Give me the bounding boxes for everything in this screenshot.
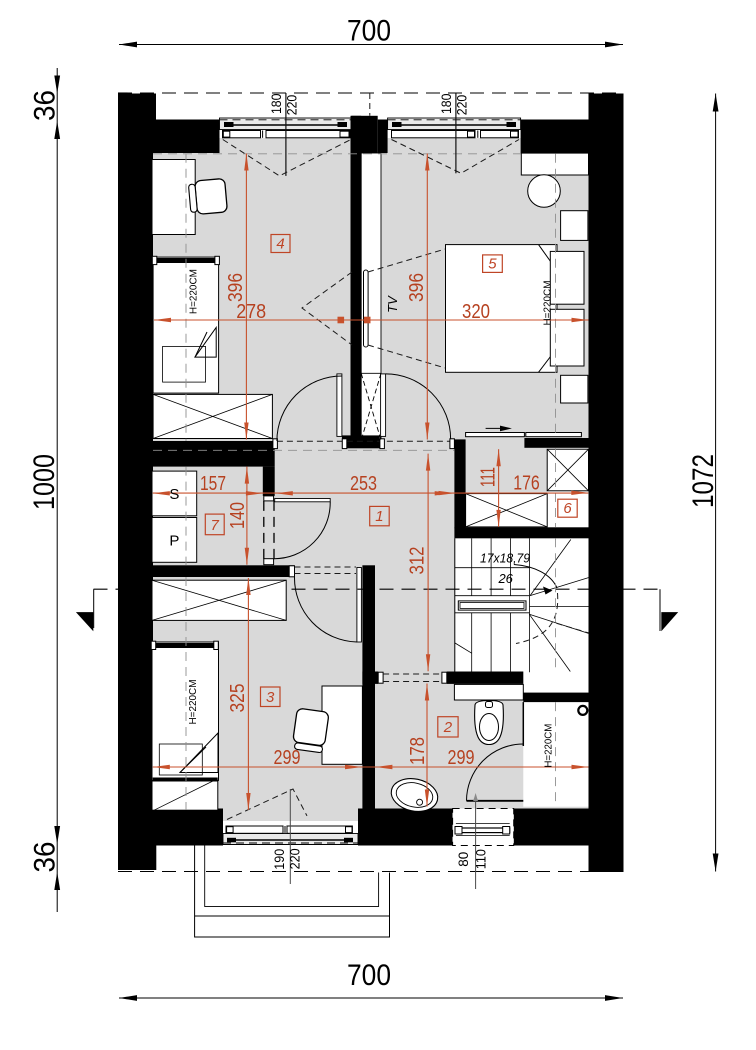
svg-text:325: 325 <box>227 684 249 713</box>
svg-text:36: 36 <box>29 842 62 873</box>
svg-text:6: 6 <box>563 500 572 517</box>
svg-text:700: 700 <box>347 959 391 992</box>
svg-text:176: 176 <box>513 472 540 494</box>
svg-text:26: 26 <box>497 571 513 586</box>
svg-text:7: 7 <box>211 517 220 534</box>
svg-text:396: 396 <box>225 273 247 302</box>
svg-text:1: 1 <box>375 508 383 525</box>
svg-text:4: 4 <box>276 236 284 253</box>
svg-text:278: 278 <box>236 301 266 323</box>
svg-text:157: 157 <box>200 473 226 495</box>
svg-text:220: 220 <box>284 95 300 116</box>
svg-text:2: 2 <box>443 719 453 736</box>
svg-text:178: 178 <box>407 737 429 765</box>
svg-text:1000: 1000 <box>28 454 61 510</box>
svg-text:3: 3 <box>266 689 275 706</box>
svg-text:H=220CM: H=220CM <box>188 680 199 725</box>
svg-text:180: 180 <box>268 93 284 114</box>
svg-text:TV: TV <box>385 295 400 313</box>
svg-text:S: S <box>169 486 179 503</box>
svg-text:1072: 1072 <box>687 454 720 508</box>
svg-text:140: 140 <box>227 502 249 529</box>
svg-text:180: 180 <box>438 93 454 114</box>
svg-text:220: 220 <box>454 95 470 116</box>
svg-text:17x18,79: 17x18,79 <box>480 551 530 566</box>
svg-text:312: 312 <box>407 547 429 575</box>
svg-text:110: 110 <box>473 849 489 869</box>
svg-text:5: 5 <box>488 256 497 273</box>
svg-text:299: 299 <box>448 747 475 769</box>
svg-text:80: 80 <box>455 851 471 866</box>
svg-text:253: 253 <box>350 473 377 495</box>
svg-text:H=220CM: H=220CM <box>544 724 555 768</box>
svg-text:P: P <box>169 533 179 550</box>
svg-text:H=220CM: H=220CM <box>189 269 200 314</box>
svg-text:220: 220 <box>287 848 303 869</box>
svg-text:320: 320 <box>462 301 490 323</box>
svg-text:299: 299 <box>274 747 301 769</box>
svg-text:396: 396 <box>406 273 428 302</box>
svg-text:H=220CM: H=220CM <box>543 281 554 326</box>
svg-text:36: 36 <box>29 90 62 121</box>
svg-text:111: 111 <box>478 467 500 487</box>
svg-text:700: 700 <box>347 15 391 48</box>
svg-text:190: 190 <box>271 849 287 870</box>
